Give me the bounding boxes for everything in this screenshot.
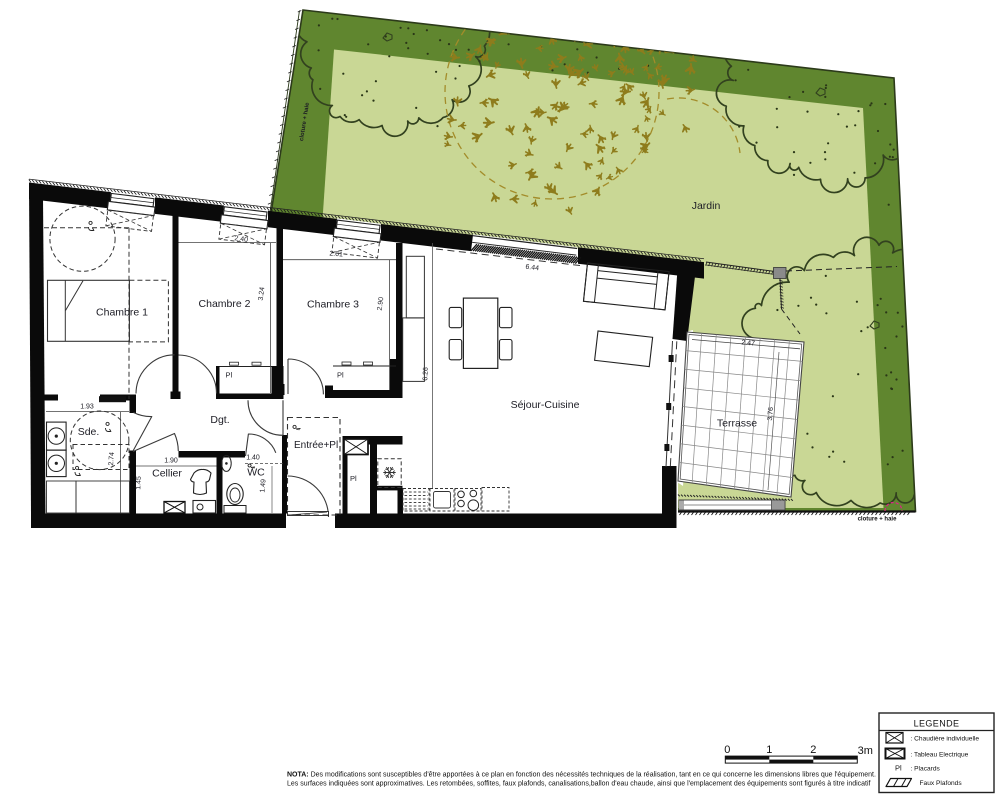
svg-text:Pl: Pl xyxy=(895,764,902,773)
svg-text:Pl: Pl xyxy=(337,371,344,380)
svg-text:: Placards: : Placards xyxy=(911,766,941,773)
svg-text:Chambre 2: Chambre 2 xyxy=(199,298,251,310)
svg-text:Séjour-Cuisine: Séjour-Cuisine xyxy=(511,399,580,411)
svg-text:Pl: Pl xyxy=(350,474,357,483)
svg-text:Entrée+Pl: Entrée+Pl xyxy=(294,440,338,451)
svg-text:2.74: 2.74 xyxy=(108,452,116,466)
svg-text:NOTA: Des modifications sont: NOTA: Des modifications sont susceptible… xyxy=(287,772,876,779)
svg-text:Chambre 1: Chambre 1 xyxy=(96,307,148,319)
svg-text:1.93: 1.93 xyxy=(80,404,94,411)
svg-text:0: 0 xyxy=(724,744,730,756)
svg-text:Jardin: Jardin xyxy=(692,200,721,212)
svg-text:Pl: Pl xyxy=(226,371,233,380)
svg-text:Faux Plafonds: Faux Plafonds xyxy=(920,780,963,787)
svg-text:Chambre 3: Chambre 3 xyxy=(307,299,359,311)
svg-text:6.26: 6.26 xyxy=(422,367,429,381)
svg-text:1: 1 xyxy=(766,744,772,756)
svg-text:2.61: 2.61 xyxy=(329,251,343,259)
svg-text:cloture + haie: cloture + haie xyxy=(858,517,898,523)
svg-text:Les surfaces indiquées sont ap: Les surfaces indiquées sont approximativ… xyxy=(287,781,871,788)
svg-text:1.45: 1.45 xyxy=(135,476,142,490)
svg-text:Sde.: Sde. xyxy=(78,426,100,438)
svg-text:3.76: 3.76 xyxy=(767,407,775,421)
svg-text:: Tableau Electrique: : Tableau Electrique xyxy=(911,752,969,759)
svg-text:: Chaudière individuelle: : Chaudière individuelle xyxy=(911,736,980,743)
svg-text:Dgt.: Dgt. xyxy=(210,414,229,426)
svg-text:2.47: 2.47 xyxy=(741,339,755,347)
svg-text:LEGENDE: LEGENDE xyxy=(914,719,960,729)
svg-text:1.49: 1.49 xyxy=(259,479,267,493)
svg-text:1.90: 1.90 xyxy=(164,458,178,465)
svg-text:1.40: 1.40 xyxy=(246,455,260,462)
svg-text:Terrasse: Terrasse xyxy=(717,418,757,430)
svg-text:Cellier: Cellier xyxy=(152,468,182,480)
svg-text:WC: WC xyxy=(247,467,265,479)
svg-text:3m: 3m xyxy=(858,745,873,757)
svg-text:2: 2 xyxy=(810,744,816,756)
